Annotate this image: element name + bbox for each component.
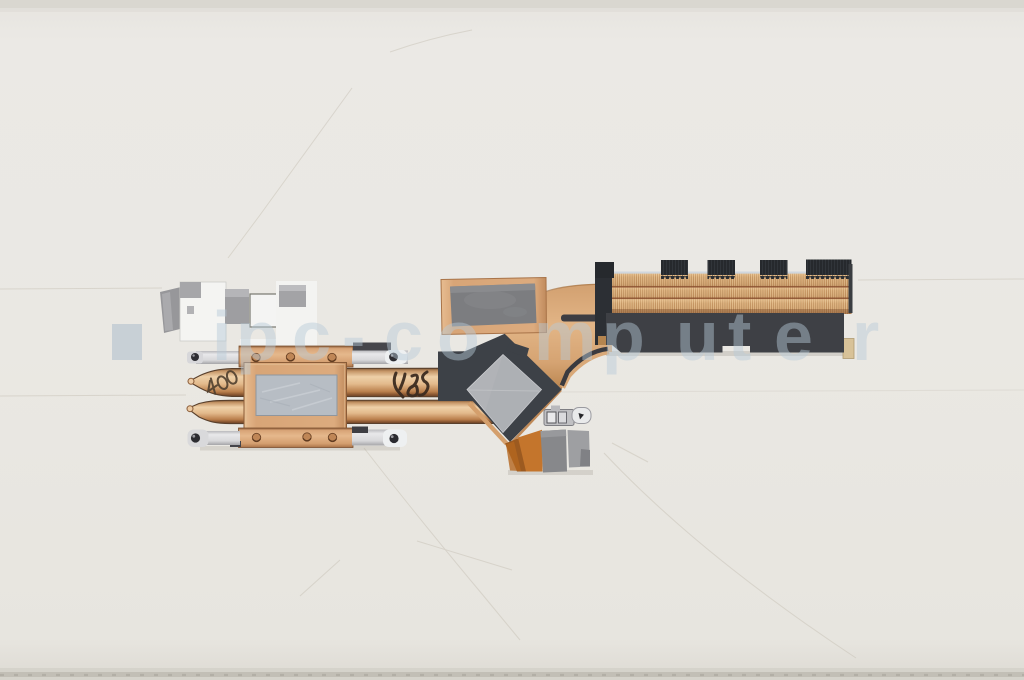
svg-text:ipc-computer: ipc-computer <box>212 297 879 375</box>
